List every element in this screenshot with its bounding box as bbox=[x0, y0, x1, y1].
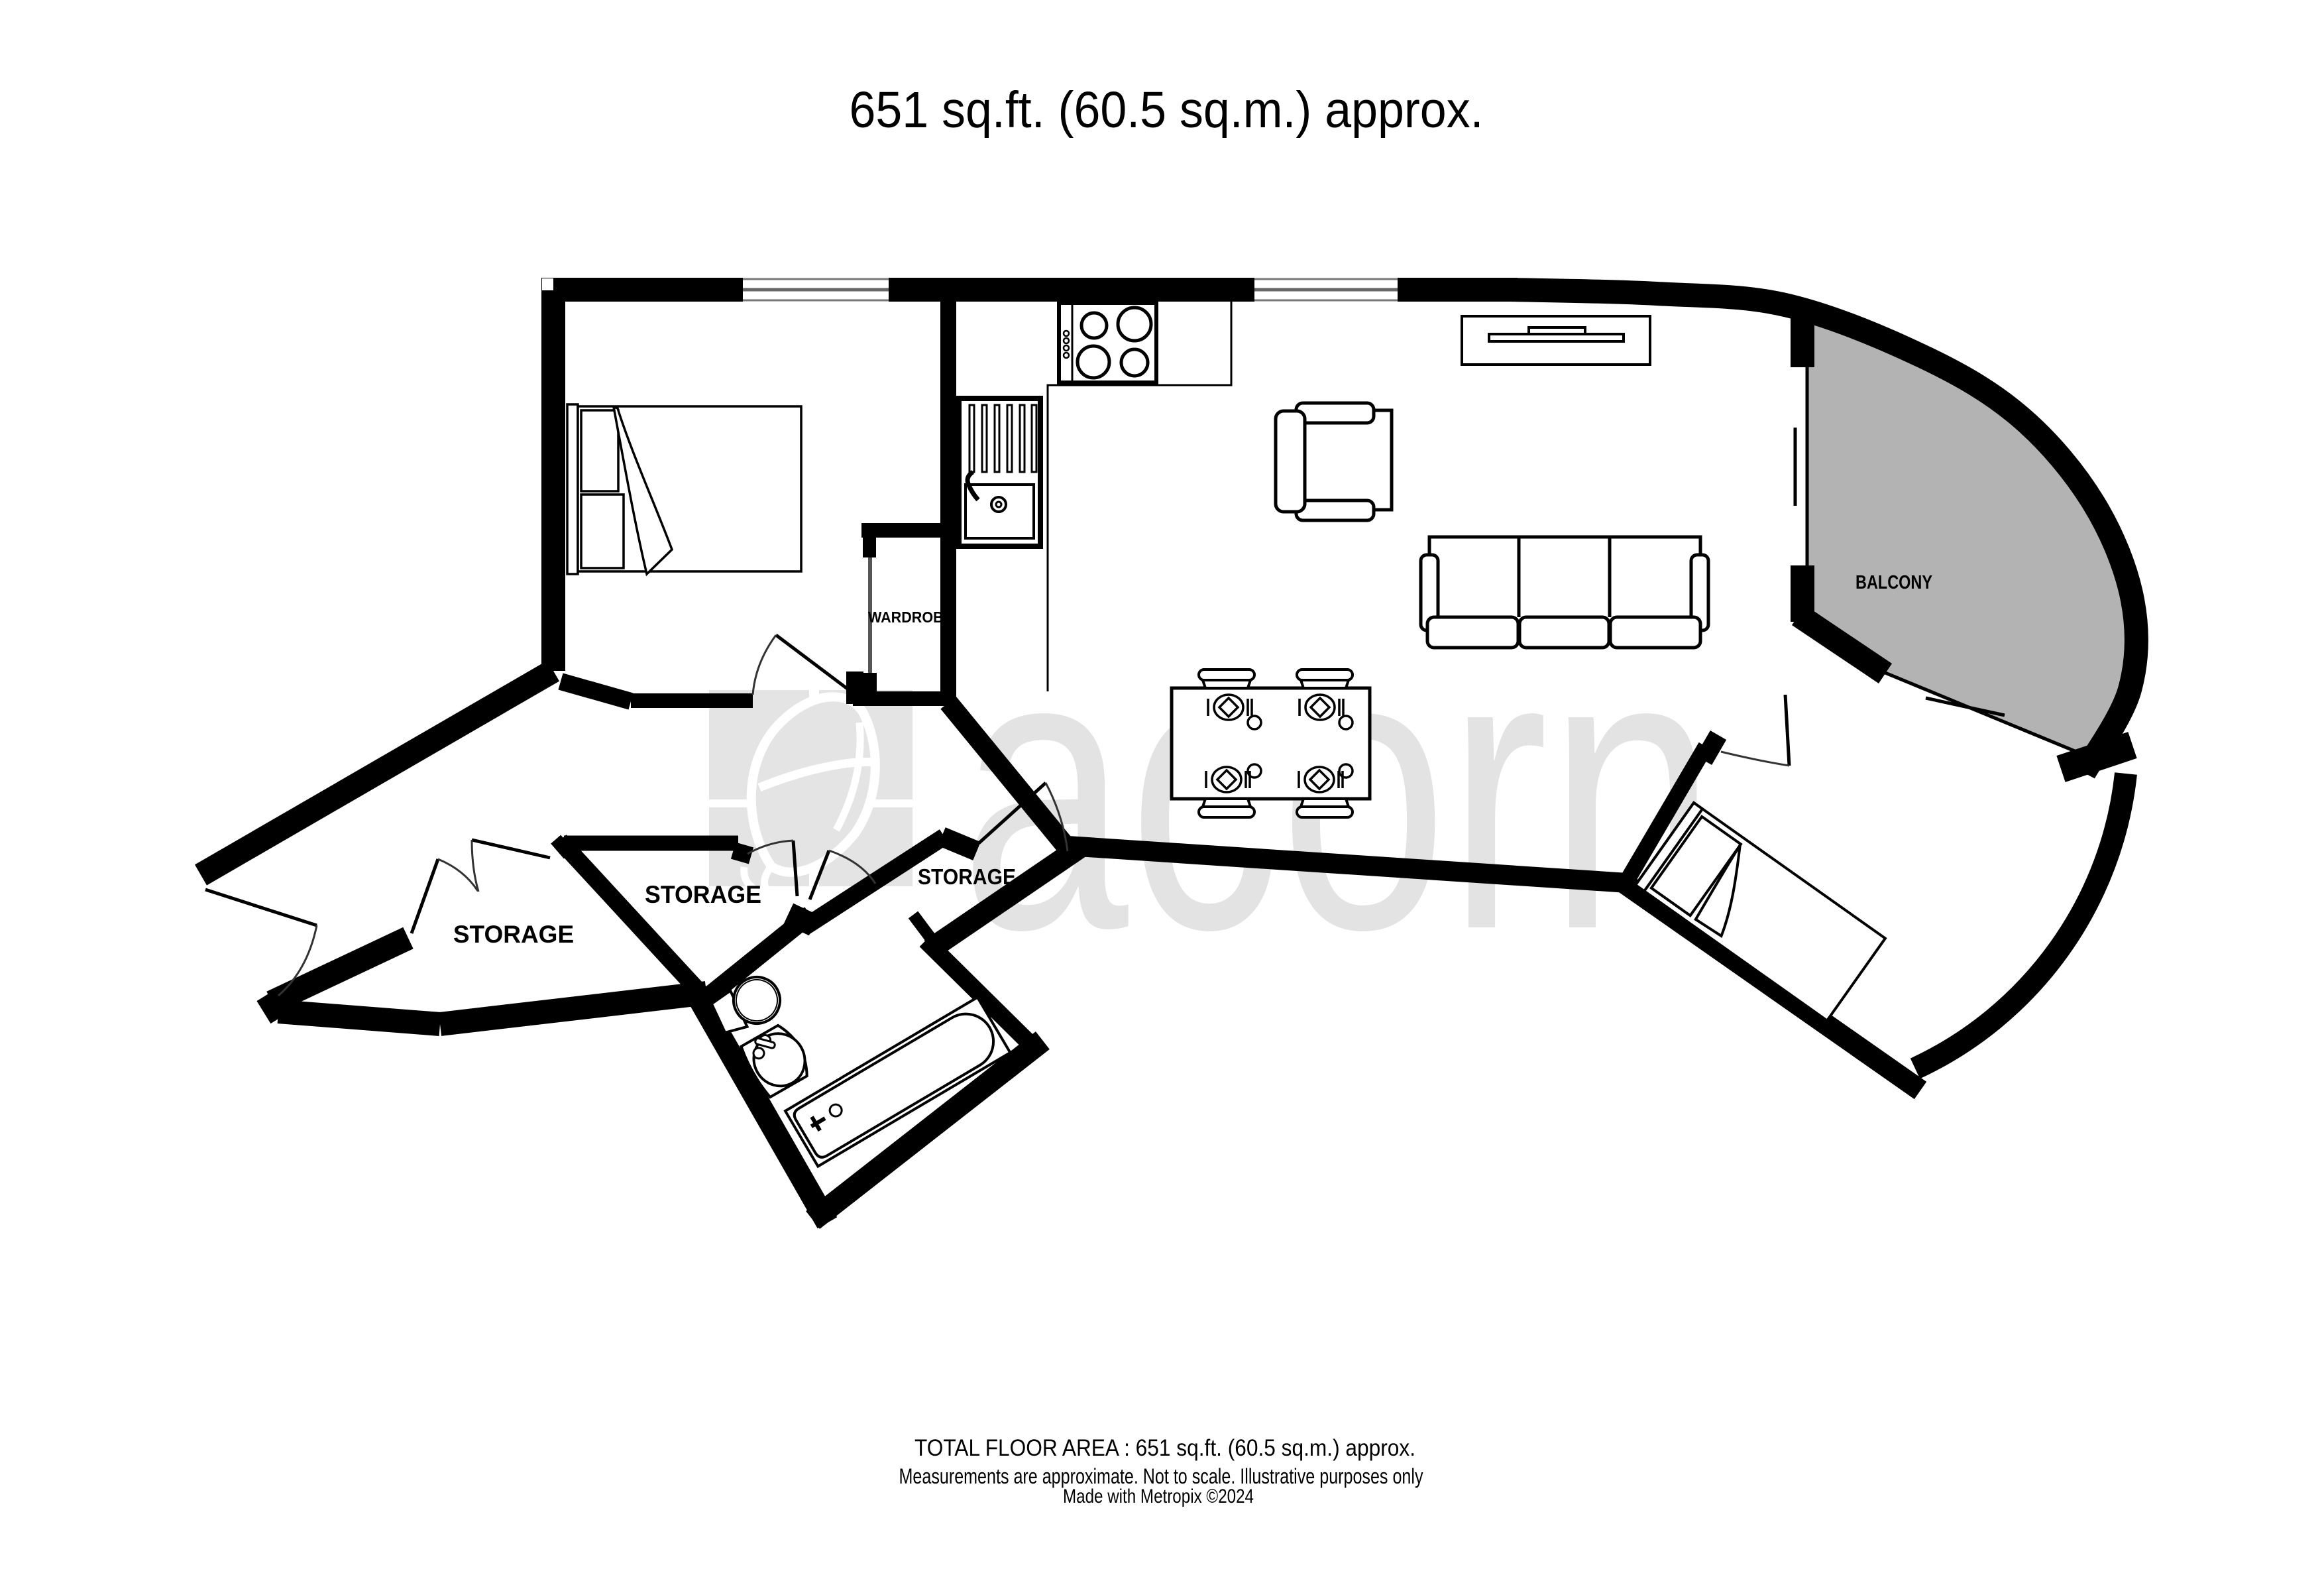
svg-text:WARDROBE: WARDROBE bbox=[868, 609, 953, 626]
svg-text:651 sq.ft. (60.5 sq.m.) approx: 651 sq.ft. (60.5 sq.m.) approx. bbox=[850, 82, 1484, 139]
svg-text:Made with Metropix ©2024: Made with Metropix ©2024 bbox=[1063, 1486, 1254, 1507]
svg-text:STORAGE: STORAGE bbox=[918, 864, 1016, 889]
svg-text:Measurements are approximate.: Measurements are approximate. Not to sca… bbox=[899, 1464, 1423, 1488]
svg-text:STORAGE: STORAGE bbox=[453, 921, 574, 948]
svg-text:TOTAL FLOOR AREA : 651 sq.ft.: TOTAL FLOOR AREA : 651 sq.ft. (60.5 sq.m… bbox=[914, 1435, 1415, 1461]
svg-text:STORAGE: STORAGE bbox=[645, 881, 761, 908]
svg-text:BALCONY: BALCONY bbox=[1855, 572, 1932, 593]
